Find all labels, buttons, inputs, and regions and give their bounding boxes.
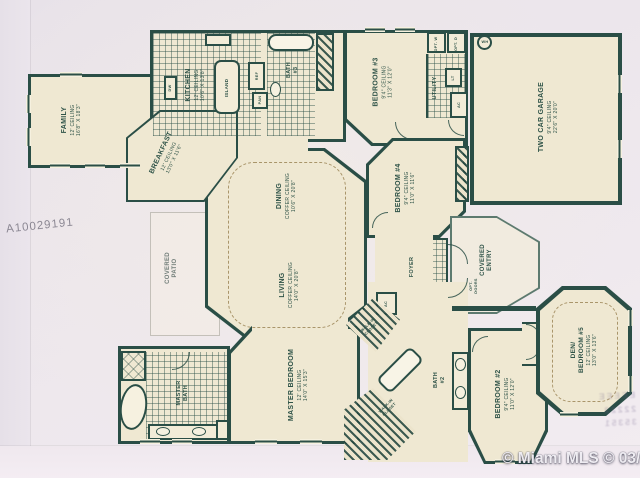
window (120, 163, 140, 168)
window (365, 27, 385, 32)
master-bath-label: MASTER BATH (174, 371, 192, 415)
floorplan-photo: FAMILY 12' CEILING 16'8" X 18'3" KITCHEN… (0, 0, 640, 478)
bedroom4-closet (455, 146, 469, 202)
sink (455, 386, 466, 399)
window (26, 128, 31, 146)
bath2-label: BATH #2 (432, 365, 448, 395)
photo-left-edge (0, 0, 30, 478)
opt-doors-label: OPT. DOORS (470, 273, 478, 299)
cooktop (205, 34, 231, 46)
sink (156, 427, 170, 436)
living-label: LIVING COFFER CEILING 14'0" X 20'8" (278, 245, 302, 325)
utility-label: UTILITY (429, 58, 441, 118)
master-bedroom-label: MASTER BEDROOM 12' CEILING 14'0" X 15'3" (286, 333, 312, 437)
window (26, 95, 31, 113)
entry-step-wall (452, 306, 536, 311)
opt-washer-label: OPT. W (430, 32, 442, 56)
window (255, 439, 277, 444)
den-label: DEN/ BEDROOM #5 12' CEILING 13'0" X 13'6… (569, 304, 599, 396)
window (628, 310, 633, 326)
water-closet (216, 420, 229, 440)
linen-closet (316, 33, 334, 91)
island-label: ISLAND (222, 64, 232, 112)
window (172, 439, 192, 444)
window (560, 412, 578, 417)
bedroom3-label: BEDROOM #3 9'4" CEILING 11'3" X 12'0" (372, 40, 396, 125)
pantry-label: PAN (256, 87, 264, 113)
floor-underlay (375, 230, 433, 285)
ac-label: AC (455, 95, 463, 115)
shower (121, 351, 146, 381)
opt-dryer-label: OPT. D (450, 32, 462, 56)
foyer-label: FOYER (407, 245, 417, 289)
bleed-line: 35351 (584, 416, 637, 432)
bedroom2-label: BEDROOM #2 9'4" CEILING 11'0" X 12'0" (494, 348, 518, 440)
mls-credit-watermark: © Miami MLS © 03/2016 (502, 450, 640, 468)
bleed-through-text: EEEEE 22222 35351 (583, 389, 637, 432)
window (85, 163, 105, 168)
toilet (270, 82, 281, 97)
dining-label: DINING COFFER CEILING 10'6" X 20'8" (275, 156, 299, 236)
kitchen-label: KITCHEN 12' CEILING 10'6" X 13'8" (184, 45, 208, 125)
window (140, 439, 160, 444)
bedroom4-label: BEDROOM #4 9'4" CEILING 11'0" X 11'6" (394, 148, 418, 228)
covered-entry-label: COVERED ENTRY (477, 228, 497, 292)
bath3-label: BATH #3 (283, 55, 303, 85)
family-label: FAMILY 12' CEILING 16'8" X 18'3" (59, 75, 85, 165)
window (617, 140, 622, 158)
sink (455, 358, 466, 371)
refrigerator-label: REF (253, 63, 261, 89)
window (395, 27, 415, 32)
laundry-tub-label: LT (449, 71, 457, 85)
window (300, 439, 322, 444)
garage-label: TWO CAR GARAGE 9'4" CEILING 22'6" X 20'0… (536, 62, 562, 172)
window (617, 75, 622, 93)
sink (192, 427, 206, 436)
covered-patio-label: COVERED PATIO (163, 240, 181, 296)
dishwasher-label: DW (166, 76, 174, 100)
bathtub-3 (268, 34, 314, 51)
water-heater-label: WH (478, 38, 492, 46)
